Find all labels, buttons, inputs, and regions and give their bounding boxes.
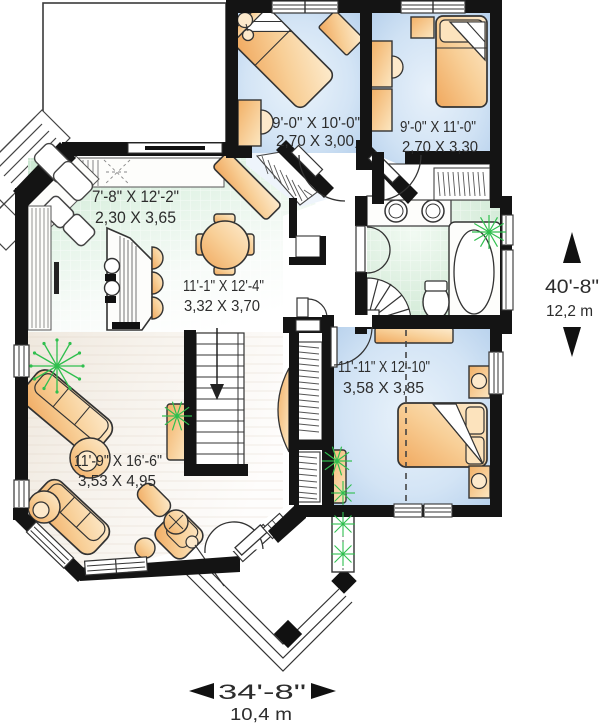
svg-text:11'-9" X 16'-6": 11'-9" X 16'-6" [74, 453, 162, 470]
svg-text:11'-1" X 12'-4": 11'-1" X 12'-4" [183, 278, 264, 295]
svg-text:11'-11" X 12'-10": 11'-11" X 12'-10" [338, 359, 430, 376]
svg-text:7'-8" X 12'-2": 7'-8" X 12'-2" [92, 188, 179, 206]
svg-text:3,58 X 3,85: 3,58 X 3,85 [343, 380, 424, 397]
svg-text:34'-8": 34'-8" [218, 681, 306, 704]
svg-text:9'-0" X 10'-0": 9'-0" X 10'-0" [272, 115, 360, 132]
svg-text:3,53 X 4,95: 3,53 X 4,95 [78, 473, 156, 490]
svg-text:12,2 m: 12,2 m [546, 303, 593, 320]
svg-text:2,30 X 3,65: 2,30 X 3,65 [95, 209, 176, 227]
svg-text:10,4 m: 10,4 m [230, 704, 292, 724]
svg-text:9'-0" X 11'-0": 9'-0" X 11'-0" [400, 119, 476, 136]
svg-text:40'-8": 40'-8" [545, 277, 599, 298]
svg-text:3,32 X 3,70: 3,32 X 3,70 [184, 298, 260, 315]
svg-text:2,70 X 3,00: 2,70 X 3,00 [276, 133, 354, 150]
svg-text:2,70 X 3,30: 2,70 X 3,30 [402, 139, 478, 156]
